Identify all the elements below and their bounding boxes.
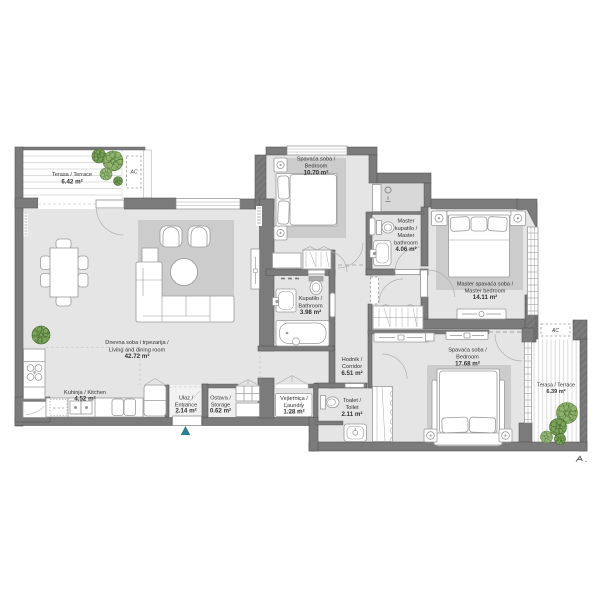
svg-text:42.72 m²: 42.72 m² bbox=[125, 353, 150, 360]
svg-text:14.11 m²: 14.11 m² bbox=[473, 294, 497, 301]
svg-text:kupatilo /: kupatilo / bbox=[395, 226, 418, 232]
svg-text:Terasa / Terrace: Terasa / Terrace bbox=[52, 172, 92, 178]
svg-text:Master: Master bbox=[397, 219, 414, 225]
svg-text:6.39 m²: 6.39 m² bbox=[546, 388, 565, 395]
svg-text:Hodnik /: Hodnik / bbox=[342, 357, 363, 363]
svg-text:Dnevna soba i trpezarija /: Dnevna soba i trpezarija / bbox=[105, 340, 169, 346]
svg-text:2.14 m²: 2.14 m² bbox=[175, 407, 196, 414]
svg-text:Toalet /: Toalet / bbox=[343, 398, 361, 404]
svg-text:0.62 m²: 0.62 m² bbox=[210, 407, 231, 414]
svg-text:Master: Master bbox=[397, 233, 414, 239]
svg-text:2.11 m²: 2.11 m² bbox=[342, 411, 363, 418]
svg-text:4.52 m²: 4.52 m² bbox=[74, 396, 95, 403]
svg-text:3.98 m²: 3.98 m² bbox=[300, 309, 321, 316]
svg-text:17.68 m²: 17.68 m² bbox=[455, 360, 480, 367]
svg-text:AC: AC bbox=[551, 328, 559, 334]
svg-text:1.28 m²: 1.28 m² bbox=[283, 409, 304, 416]
svg-text:Ulaz /: Ulaz / bbox=[179, 395, 194, 401]
svg-text:Master spavaća soba /: Master spavaća soba / bbox=[457, 281, 514, 287]
svg-text:Terasa / Terrace: Terasa / Terrace bbox=[537, 383, 575, 389]
svg-text:10.70 m²: 10.70 m² bbox=[304, 169, 329, 176]
svg-text:AC: AC bbox=[130, 170, 138, 176]
svg-text:Ostava /: Ostava / bbox=[210, 395, 231, 401]
svg-text:Spavaća soba /: Spavaća soba / bbox=[297, 157, 336, 163]
svg-text:6.42 m²: 6.42 m² bbox=[61, 178, 82, 185]
svg-text:6.51 m²: 6.51 m² bbox=[341, 370, 362, 377]
svg-text:4.06 m²: 4.06 m² bbox=[395, 246, 416, 253]
svg-text:Kupatilo /: Kupatilo / bbox=[299, 296, 323, 302]
svg-text:Vešernica /: Vešernica / bbox=[280, 396, 308, 402]
svg-text:Spavaća soba /: Spavaća soba / bbox=[448, 347, 487, 353]
